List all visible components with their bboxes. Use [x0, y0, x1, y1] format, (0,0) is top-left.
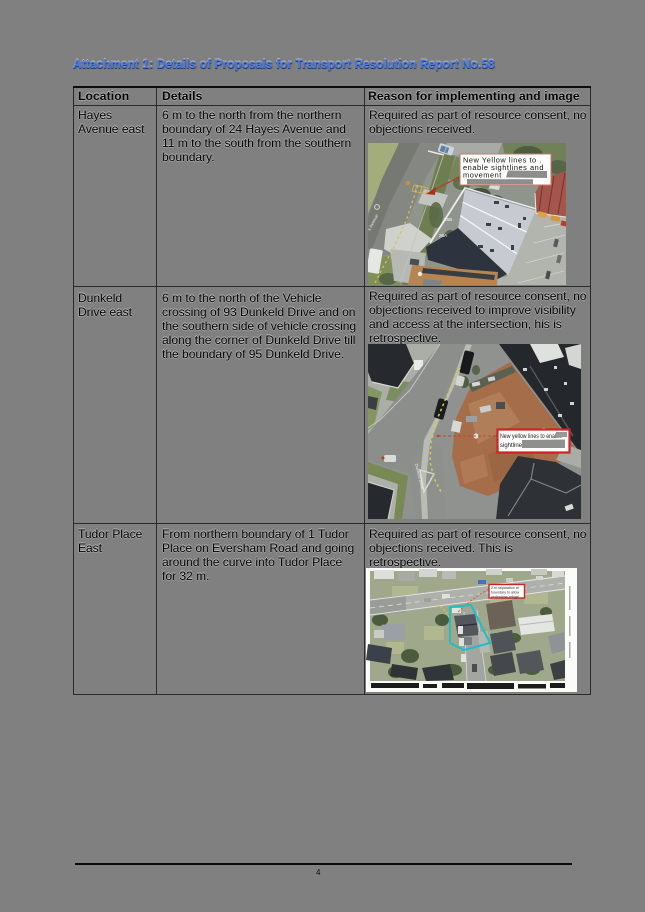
svg-text:2 m separation at: 2 m separation at — [491, 586, 519, 590]
svg-text:26A: 26A — [439, 233, 448, 238]
svg-text:boundary to allow: boundary to allow — [491, 590, 520, 594]
svg-text:New yellow lines to enable: New yellow lines to enable — [500, 434, 563, 440]
svg-text:pedestrian refuge: pedestrian refuge — [491, 595, 519, 599]
svg-text:movement: movement — [463, 171, 502, 180]
svg-text:26B: 26B — [444, 217, 452, 222]
svg-text:sightlines: sightlines — [500, 443, 525, 449]
